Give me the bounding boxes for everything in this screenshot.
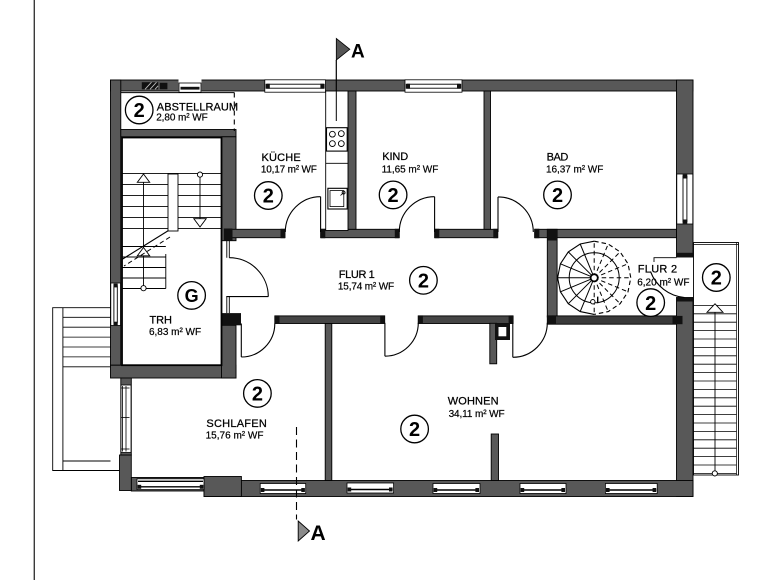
svg-text:SCHLAFEN: SCHLAFEN: [206, 418, 266, 430]
svg-text:15,76 m² WF: 15,76 m² WF: [206, 431, 264, 442]
svg-text:G: G: [185, 286, 199, 306]
svg-text:BAD: BAD: [547, 152, 569, 164]
svg-text:FLUR 2: FLUR 2: [638, 264, 677, 276]
svg-text:34,11 m² WF: 34,11 m² WF: [449, 409, 505, 420]
svg-text:15,74 m² WF: 15,74 m² WF: [338, 282, 394, 293]
svg-text:FLUR 1: FLUR 1: [339, 269, 375, 281]
svg-text:WOHNEN: WOHNEN: [448, 395, 499, 407]
svg-text:2,80 m² WF: 2,80 m² WF: [156, 112, 208, 123]
svg-text:A: A: [311, 522, 326, 545]
svg-text:6,20 m² WF: 6,20 m² WF: [637, 278, 689, 289]
svg-text:2: 2: [263, 186, 274, 208]
svg-text:2: 2: [388, 185, 399, 207]
svg-text:6,83 m² WF: 6,83 m² WF: [149, 327, 201, 338]
svg-text:2: 2: [252, 384, 263, 406]
svg-text:11,65 m² WF: 11,65 m² WF: [382, 164, 439, 175]
svg-text:KÜCHE: KÜCHE: [262, 152, 301, 164]
svg-text:2: 2: [134, 100, 145, 122]
svg-text:16,37 m² WF: 16,37 m² WF: [546, 165, 603, 176]
svg-text:2: 2: [418, 271, 429, 293]
svg-text:A: A: [351, 42, 365, 63]
svg-text:2: 2: [645, 293, 656, 315]
svg-text:KIND: KIND: [382, 151, 408, 163]
svg-text:2: 2: [409, 419, 420, 441]
svg-text:TRH: TRH: [150, 315, 173, 327]
svg-text:2: 2: [552, 185, 563, 207]
svg-text:2: 2: [711, 268, 722, 290]
svg-text:10,17 m² WF: 10,17 m² WF: [261, 164, 317, 175]
